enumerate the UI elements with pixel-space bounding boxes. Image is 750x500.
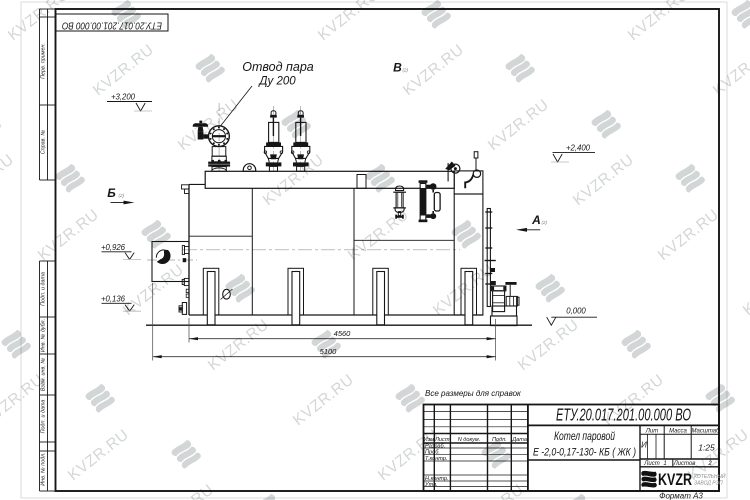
svg-text:А: А	[531, 213, 541, 227]
svg-text:N докум.: N докум.	[458, 437, 481, 443]
svg-text:+0,136: +0,136	[101, 295, 126, 304]
svg-text:Утв.: Утв.	[424, 482, 438, 488]
svg-text:Инв. № дубл.: Инв. № дубл.	[41, 319, 47, 352]
svg-text:Дата: Дата	[511, 437, 527, 443]
svg-text:Б: Б	[107, 186, 116, 200]
svg-text:(2): (2)	[119, 193, 125, 198]
svg-text:ЕТУ.20.017.201.00.000 ВО: ЕТУ.20.017.201.00.000 ВО	[62, 20, 162, 32]
svg-text:0,000: 0,000	[566, 307, 586, 316]
svg-text:Подп. и дата: Подп. и дата	[41, 400, 47, 434]
svg-text:Отвод пара: Отвод пара	[242, 60, 314, 74]
svg-text:Перв. примен.: Перв. примен.	[41, 43, 47, 79]
svg-text:4560: 4560	[334, 329, 352, 338]
svg-text:Формат А3: Формат А3	[659, 492, 703, 500]
svg-text:Лист: Лист	[643, 461, 659, 467]
svg-text:+0,926: +0,926	[101, 243, 126, 252]
svg-text:Инв. № подл.: Инв. № подл.	[41, 452, 47, 485]
svg-text:Справ. №: Справ. №	[41, 130, 47, 155]
svg-text:Подп. и дата: Подп. и дата	[41, 272, 47, 306]
svg-text:Лит: Лит	[645, 428, 658, 434]
svg-text:(2): (2)	[403, 68, 409, 73]
svg-text:Т.контр.: Т.контр.	[425, 456, 448, 462]
svg-text:+2,400: +2,400	[566, 144, 591, 153]
svg-text:1: 1	[663, 461, 666, 467]
svg-text:Е -2,0-0,17-130- КБ ( ЖК ): Е -2,0-0,17-130- КБ ( ЖК )	[533, 447, 636, 459]
svg-text:(2): (2)	[542, 220, 548, 225]
svg-text:Ду 200: Ду 200	[257, 76, 296, 88]
svg-text:Котел паровой: Котел паровой	[554, 431, 615, 443]
svg-text:Масса: Масса	[669, 428, 687, 434]
svg-text:В: В	[393, 61, 402, 75]
svg-text:+3,200: +3,200	[111, 93, 136, 102]
svg-text:И: И	[641, 441, 647, 450]
svg-text:Все размеры для справок: Все размеры для справок	[425, 389, 522, 398]
svg-text:Масштаб: Масштаб	[691, 428, 720, 434]
